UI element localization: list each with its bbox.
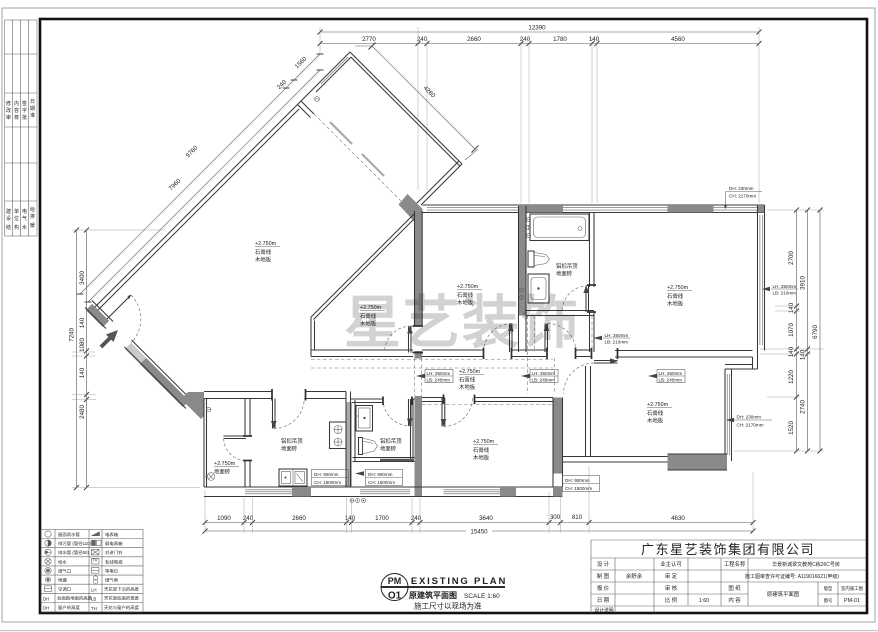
svg-text:+2.750m: +2.750m [473,439,495,445]
svg-text:CH: 1500mm: CH: 1500mm [368,480,395,485]
svg-text:1220: 1220 [788,370,795,384]
svg-text:煤气表: 煤气表 [105,577,119,584]
svg-text:煤气口: 煤气口 [58,567,71,574]
svg-text:DH: 230mm: DH: 230mm [729,186,754,191]
svg-text:PM-01: PM-01 [844,598,860,604]
svg-text:+2.750m: +2.750m [459,369,481,375]
svg-text:+2.750m: +2.750m [647,402,669,408]
svg-text:批: 批 [22,114,27,121]
svg-text:810: 810 [572,514,583,521]
svg-text:4560: 4560 [671,36,685,43]
svg-text:窗户的高度: 窗户的高度 [58,604,81,611]
svg-text:LB: 240mm: LB: 240mm [427,378,451,383]
svg-text:设计说明: 设计说明 [594,607,613,614]
svg-text:240: 240 [243,515,254,522]
svg-text:LB: 240mm: LB: 240mm [659,378,683,383]
svg-text:石膏线: 石膏线 [459,376,476,384]
svg-text:木地板: 木地板 [459,383,476,391]
svg-text:2770: 2770 [362,36,376,43]
svg-text:天花与窗户的高度: 天花与窗户的高度 [104,604,140,611]
svg-text:TV: TV [92,557,98,562]
svg-text:日: 日 [30,99,35,105]
svg-text:施工尺寸以现场为准: 施工尺寸以现场为准 [414,601,482,611]
svg-text:DH: 900mm: DH: 900mm [368,472,393,477]
svg-text:4630: 4630 [671,515,685,522]
svg-text:石膏线: 石膏线 [667,292,684,300]
svg-text:石膏线: 石膏线 [473,446,490,454]
svg-text:1780: 1780 [553,36,567,43]
svg-text:12390: 12390 [528,25,546,32]
svg-text:CH: 1500mm: CH: 1500mm [565,486,592,491]
svg-text:排水管 (管径50): 排水管 (管径50) [58,549,90,556]
svg-text:DH: 900mm: DH: 900mm [314,472,339,477]
svg-text:铝扣吊顶: 铝扣吊顶 [380,437,402,445]
svg-text:地面砖: 地面砖 [556,270,573,278]
svg-text:+2.750m: +2.750m [667,285,689,291]
svg-text:3910: 3910 [800,276,807,290]
svg-text:木地板: 木地板 [255,256,272,264]
svg-text:DH: DH [43,596,49,601]
svg-text:室内施工图: 室内施工图 [841,585,864,592]
svg-text:有线电视: 有线电视 [105,558,123,565]
svg-text:DH: 900mm: DH: 900mm [565,478,590,483]
svg-text:结: 结 [6,224,11,231]
svg-text:期: 期 [30,106,35,112]
svg-text:构: 构 [14,224,19,231]
svg-text:LB: 210mm: LB: 210mm [773,291,797,296]
svg-text:+2.750m: +2.750m [214,461,236,467]
svg-text:TH: TH [91,606,97,611]
svg-text:准: 准 [30,112,35,119]
svg-text:LH: 350mm: LH: 350mm [773,284,797,289]
svg-text:业主认可: 业主认可 [660,560,682,568]
svg-text:EXISTING PLAN: EXISTING PLAN [411,576,507,587]
svg-text:LB: 240mm: LB: 240mm [532,378,556,383]
svg-text:3400: 3400 [79,271,86,285]
svg-text:排污管 (管径110): 排污管 (管径110) [58,540,92,547]
svg-text:原建筑平面图: 原建筑平面图 [409,590,457,600]
svg-text:审 核: 审 核 [665,584,678,592]
svg-text:电表箱: 电表箱 [105,531,119,538]
svg-text:木地板: 木地板 [457,299,474,307]
svg-text:+2.750m: +2.750m [457,284,479,290]
svg-text:木地板: 木地板 [360,320,377,328]
svg-text:LH: LH [91,588,97,593]
svg-text:140: 140 [79,317,86,328]
svg-text:日 期: 日 期 [597,597,609,604]
svg-text:水: 水 [22,224,27,231]
svg-text:1070: 1070 [788,323,795,337]
svg-text:CH: 2170mm: CH: 2170mm [729,194,756,199]
svg-text:给: 给 [30,206,35,213]
svg-text:签: 签 [22,100,27,107]
svg-text:工程名称: 工程名称 [724,560,746,568]
svg-text:广东星艺装饰集团有限公司: 广东星艺装饰集团有限公司 [641,542,815,557]
svg-text:弱电表箱: 弱电表箱 [105,540,123,547]
svg-text:2480: 2480 [79,405,86,419]
svg-text:内: 内 [14,100,19,107]
svg-text:电: 电 [22,208,27,215]
svg-text:石膏线: 石膏线 [457,291,474,299]
svg-text:气: 气 [22,215,27,222]
svg-text:比 例: 比 例 [665,596,677,604]
svg-text:石膏线: 石膏线 [255,248,272,256]
svg-text:CH: 1500mm: CH: 1500mm [314,480,341,485]
svg-text:空调口: 空调口 [58,586,71,593]
svg-text:2700: 2700 [788,251,795,265]
svg-text:LH: 350mm: LH: 350mm [605,333,629,338]
svg-text:LH: 350mm: LH: 350mm [532,371,556,376]
svg-text:给水: 给水 [58,558,67,565]
svg-text:施工图审查许可证编号: A119016621(甲级): 施工图审查许可证编号: A119016621(甲级) [745,573,839,580]
svg-text:位: 位 [14,215,19,222]
svg-text:6790: 6790 [812,325,819,339]
svg-text:+2.750m: +2.750m [255,241,277,247]
svg-text:报 价: 报 价 [597,584,610,592]
svg-text:2660: 2660 [467,36,481,43]
svg-text:铝扣吊顶: 铝扣吊顶 [281,437,303,445]
svg-text:对讲门铃: 对讲门铃 [105,549,123,556]
svg-text:PM: PM [388,576,402,586]
svg-text:台面距地面的高度: 台面距地面的高度 [57,595,93,602]
svg-text:单: 单 [14,208,19,215]
svg-text:DH: 230mm: DH: 230mm [737,415,762,420]
svg-text:140: 140 [800,349,807,360]
svg-text:CH: 2170mm: CH: 2170mm [737,423,764,428]
svg-text:建: 建 [6,208,11,215]
svg-text:字: 字 [22,107,27,114]
svg-text:2740: 2740 [800,400,807,414]
svg-text:审 定: 审 定 [665,572,678,580]
svg-text:排: 排 [30,213,35,220]
svg-text:图 纸: 图 纸 [728,584,741,592]
svg-text:SCALE 1:60: SCALE 1:60 [464,593,500,600]
svg-text:原建筑平面图: 原建筑平面图 [767,590,799,598]
svg-text:地面砖: 地面砖 [380,445,397,453]
svg-text:木地板: 木地板 [647,417,664,425]
svg-text:240: 240 [417,36,428,43]
svg-text:地面砖: 地面砖 [281,445,298,453]
svg-text:内 容: 内 容 [728,596,741,604]
svg-text:等电位: 等电位 [105,567,119,573]
svg-text:140: 140 [788,346,795,357]
svg-text:1080: 1080 [79,338,86,352]
svg-text:15450: 15450 [470,529,488,536]
svg-text:屋面雨水管: 屋面雨水管 [58,531,81,538]
svg-text:300: 300 [550,514,561,521]
svg-text:版型: 版型 [824,585,833,592]
svg-text:1:60: 1:60 [699,598,710,604]
svg-text:设: 设 [6,215,11,222]
svg-text:7240: 7240 [69,328,76,342]
svg-text:天花梁下沿的高度: 天花梁下沿的高度 [104,586,140,593]
svg-text:140: 140 [788,302,795,313]
svg-text:LB: LB [91,597,97,602]
svg-text:DH: DH [43,605,49,610]
svg-text:核: 核 [14,114,19,121]
svg-text:+2.750m: +2.750m [360,305,382,311]
svg-text:修: 修 [6,100,11,107]
svg-text:LH: 350mm: LH: 350mm [659,371,683,376]
svg-text:木地板: 木地板 [473,454,490,462]
svg-text:铝扣吊顶: 铝扣吊顶 [556,262,578,270]
svg-text:2660: 2660 [292,515,306,522]
svg-text:容: 容 [14,107,19,114]
svg-text:140: 140 [79,367,86,378]
svg-text:1700: 1700 [375,515,389,522]
svg-text:LH: 350mm: LH: 350mm [427,371,451,376]
svg-text:地面砖: 地面砖 [214,468,231,476]
svg-text:1520: 1520 [788,421,795,435]
svg-text:木地板: 木地板 [667,300,684,308]
svg-text:制 图: 制 图 [597,572,609,580]
svg-text:华景新城翠文教苑C栋26C号房: 华景新城翠文教苑C栋26C号房 [772,561,840,568]
svg-text:暖: 暖 [30,222,35,229]
svg-text:石膏线: 石膏线 [360,312,377,320]
svg-text:LB: 210mm: LB: 210mm [605,340,629,345]
svg-text:审: 审 [6,114,11,121]
svg-text:余舒余: 余舒余 [626,572,643,580]
svg-text:地漏: 地漏 [58,577,67,584]
svg-text:改: 改 [6,107,11,114]
svg-text:设 计: 设 计 [597,560,610,568]
svg-text:O1: O1 [388,591,402,602]
svg-text:1090: 1090 [217,515,231,522]
svg-text:石膏线: 石膏线 [647,409,664,417]
svg-text:3640: 3640 [479,515,493,522]
svg-text:天花梁底面的宽度: 天花梁底面的宽度 [104,595,140,602]
